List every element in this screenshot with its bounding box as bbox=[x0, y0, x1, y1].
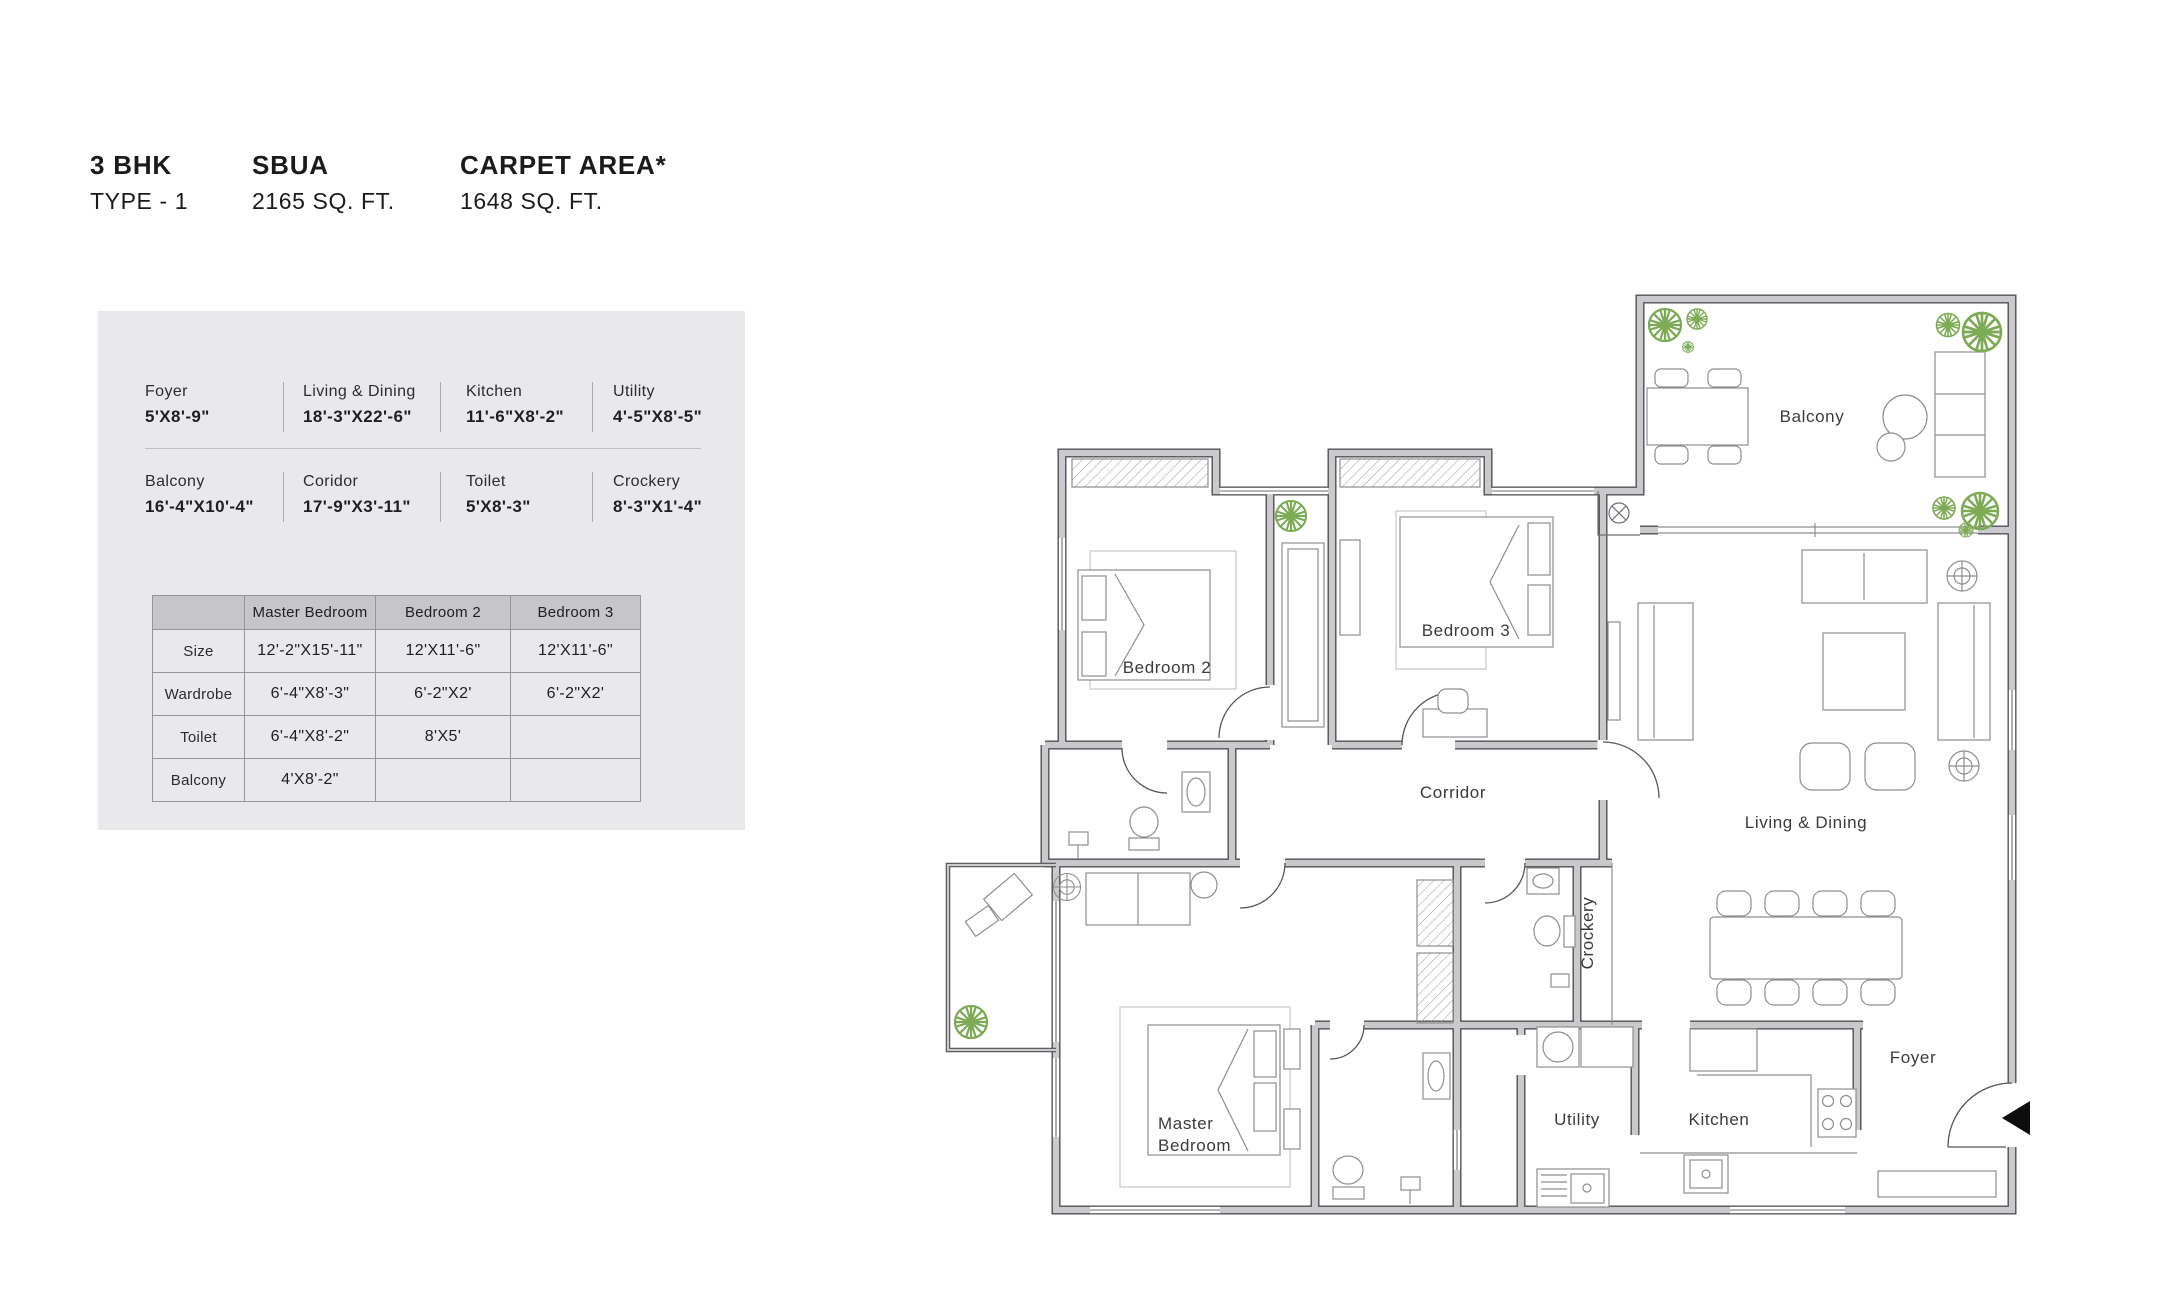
table-header-row: Master Bedroom Bedroom 2 Bedroom 3 bbox=[153, 596, 641, 630]
table-row: Wardrobe 6'-4"X8'-3" 6'-2"X2' 6'-2"X2' bbox=[153, 673, 641, 716]
bhk-subtitle: TYPE - 1 bbox=[90, 188, 188, 215]
carpet-label: CARPET AREA* bbox=[460, 150, 667, 181]
foyer-furniture bbox=[1878, 1171, 1996, 1197]
label-crockery: Crockery bbox=[1578, 897, 1597, 970]
dim-coridor: Coridor 17'-9"X3'-11" bbox=[303, 473, 411, 517]
sbua-value: 2165 SQ. FT. bbox=[252, 188, 395, 215]
bhk-title: 3 BHK bbox=[90, 150, 188, 181]
bedroom-spec-table: Master Bedroom Bedroom 2 Bedroom 3 Size … bbox=[152, 595, 641, 802]
west-balcony-furniture bbox=[965, 873, 1032, 936]
label-corridor: Corridor bbox=[1420, 783, 1486, 802]
label-master-1: Master bbox=[1158, 1114, 1214, 1133]
divider bbox=[145, 448, 701, 449]
table-row: Size 12'-2"X15'-11" 12'X11'-6" 12'X11'-6… bbox=[153, 630, 641, 673]
toilet-master bbox=[1333, 1053, 1450, 1204]
table-row: Balcony 4'X8'-2" bbox=[153, 759, 641, 802]
divider bbox=[440, 472, 441, 522]
toilet-bedroom2 bbox=[1069, 772, 1210, 859]
label-foyer: Foyer bbox=[1890, 1048, 1936, 1067]
label-master-2: Bedroom bbox=[1158, 1136, 1231, 1155]
dim-toilet: Toilet 5'X8'-3" bbox=[466, 473, 531, 517]
sbua-block: SBUA 2165 SQ. FT. bbox=[252, 150, 395, 215]
label-balcony: Balcony bbox=[1780, 407, 1845, 426]
bedroom3-furniture bbox=[1340, 459, 1553, 737]
dimensions-panel: Foyer 5'X8'-9" Living & Dining 18'-3"X22… bbox=[98, 311, 745, 830]
label-living-dining: Living & Dining bbox=[1745, 813, 1867, 832]
dim-balcony: Balcony 16'-4"X10'-4" bbox=[145, 473, 254, 517]
table-row: Toilet 6'-4"X8'-2" 8'X5' bbox=[153, 716, 641, 759]
dim-foyer: Foyer 5'X8'-9" bbox=[145, 383, 210, 427]
label-bedroom2: Bedroom 2 bbox=[1123, 658, 1212, 677]
living-dining-furniture bbox=[1608, 550, 1990, 1005]
dim-living-dining: Living & Dining 18'-3"X22'-6" bbox=[303, 383, 416, 427]
carpet-area-block: CARPET AREA* 1648 SQ. FT. bbox=[460, 150, 667, 215]
walls bbox=[948, 299, 2012, 1210]
label-bedroom3: Bedroom 3 bbox=[1422, 621, 1511, 640]
balcony-slider bbox=[1658, 523, 1978, 537]
label-utility: Utility bbox=[1554, 1110, 1600, 1129]
divider bbox=[283, 382, 284, 432]
dim-crockery: Crockery 8'-3"X1'-4" bbox=[613, 473, 702, 517]
plan-type-block: 3 BHK TYPE - 1 bbox=[90, 150, 188, 215]
label-kitchen: Kitchen bbox=[1689, 1110, 1750, 1129]
divider bbox=[592, 382, 593, 432]
bedroom2-furniture bbox=[1072, 459, 1324, 727]
toilet-powder bbox=[1527, 868, 1575, 987]
dim-utility: Utility 4'-5"X8'-5" bbox=[613, 383, 702, 427]
carpet-value: 1648 SQ. FT. bbox=[460, 188, 667, 215]
divider bbox=[440, 382, 441, 432]
floor-plan: Bedroom 2 Bedroom 3 Balcony Corridor Liv… bbox=[940, 285, 2040, 1235]
sbua-label: SBUA bbox=[252, 150, 395, 181]
divider bbox=[283, 472, 284, 522]
dim-kitchen: Kitchen 11'-6"X8'-2" bbox=[466, 383, 564, 427]
divider bbox=[592, 472, 593, 522]
brochure-page: 3 BHK TYPE - 1 SBUA 2165 SQ. FT. CARPET … bbox=[0, 0, 2164, 1314]
